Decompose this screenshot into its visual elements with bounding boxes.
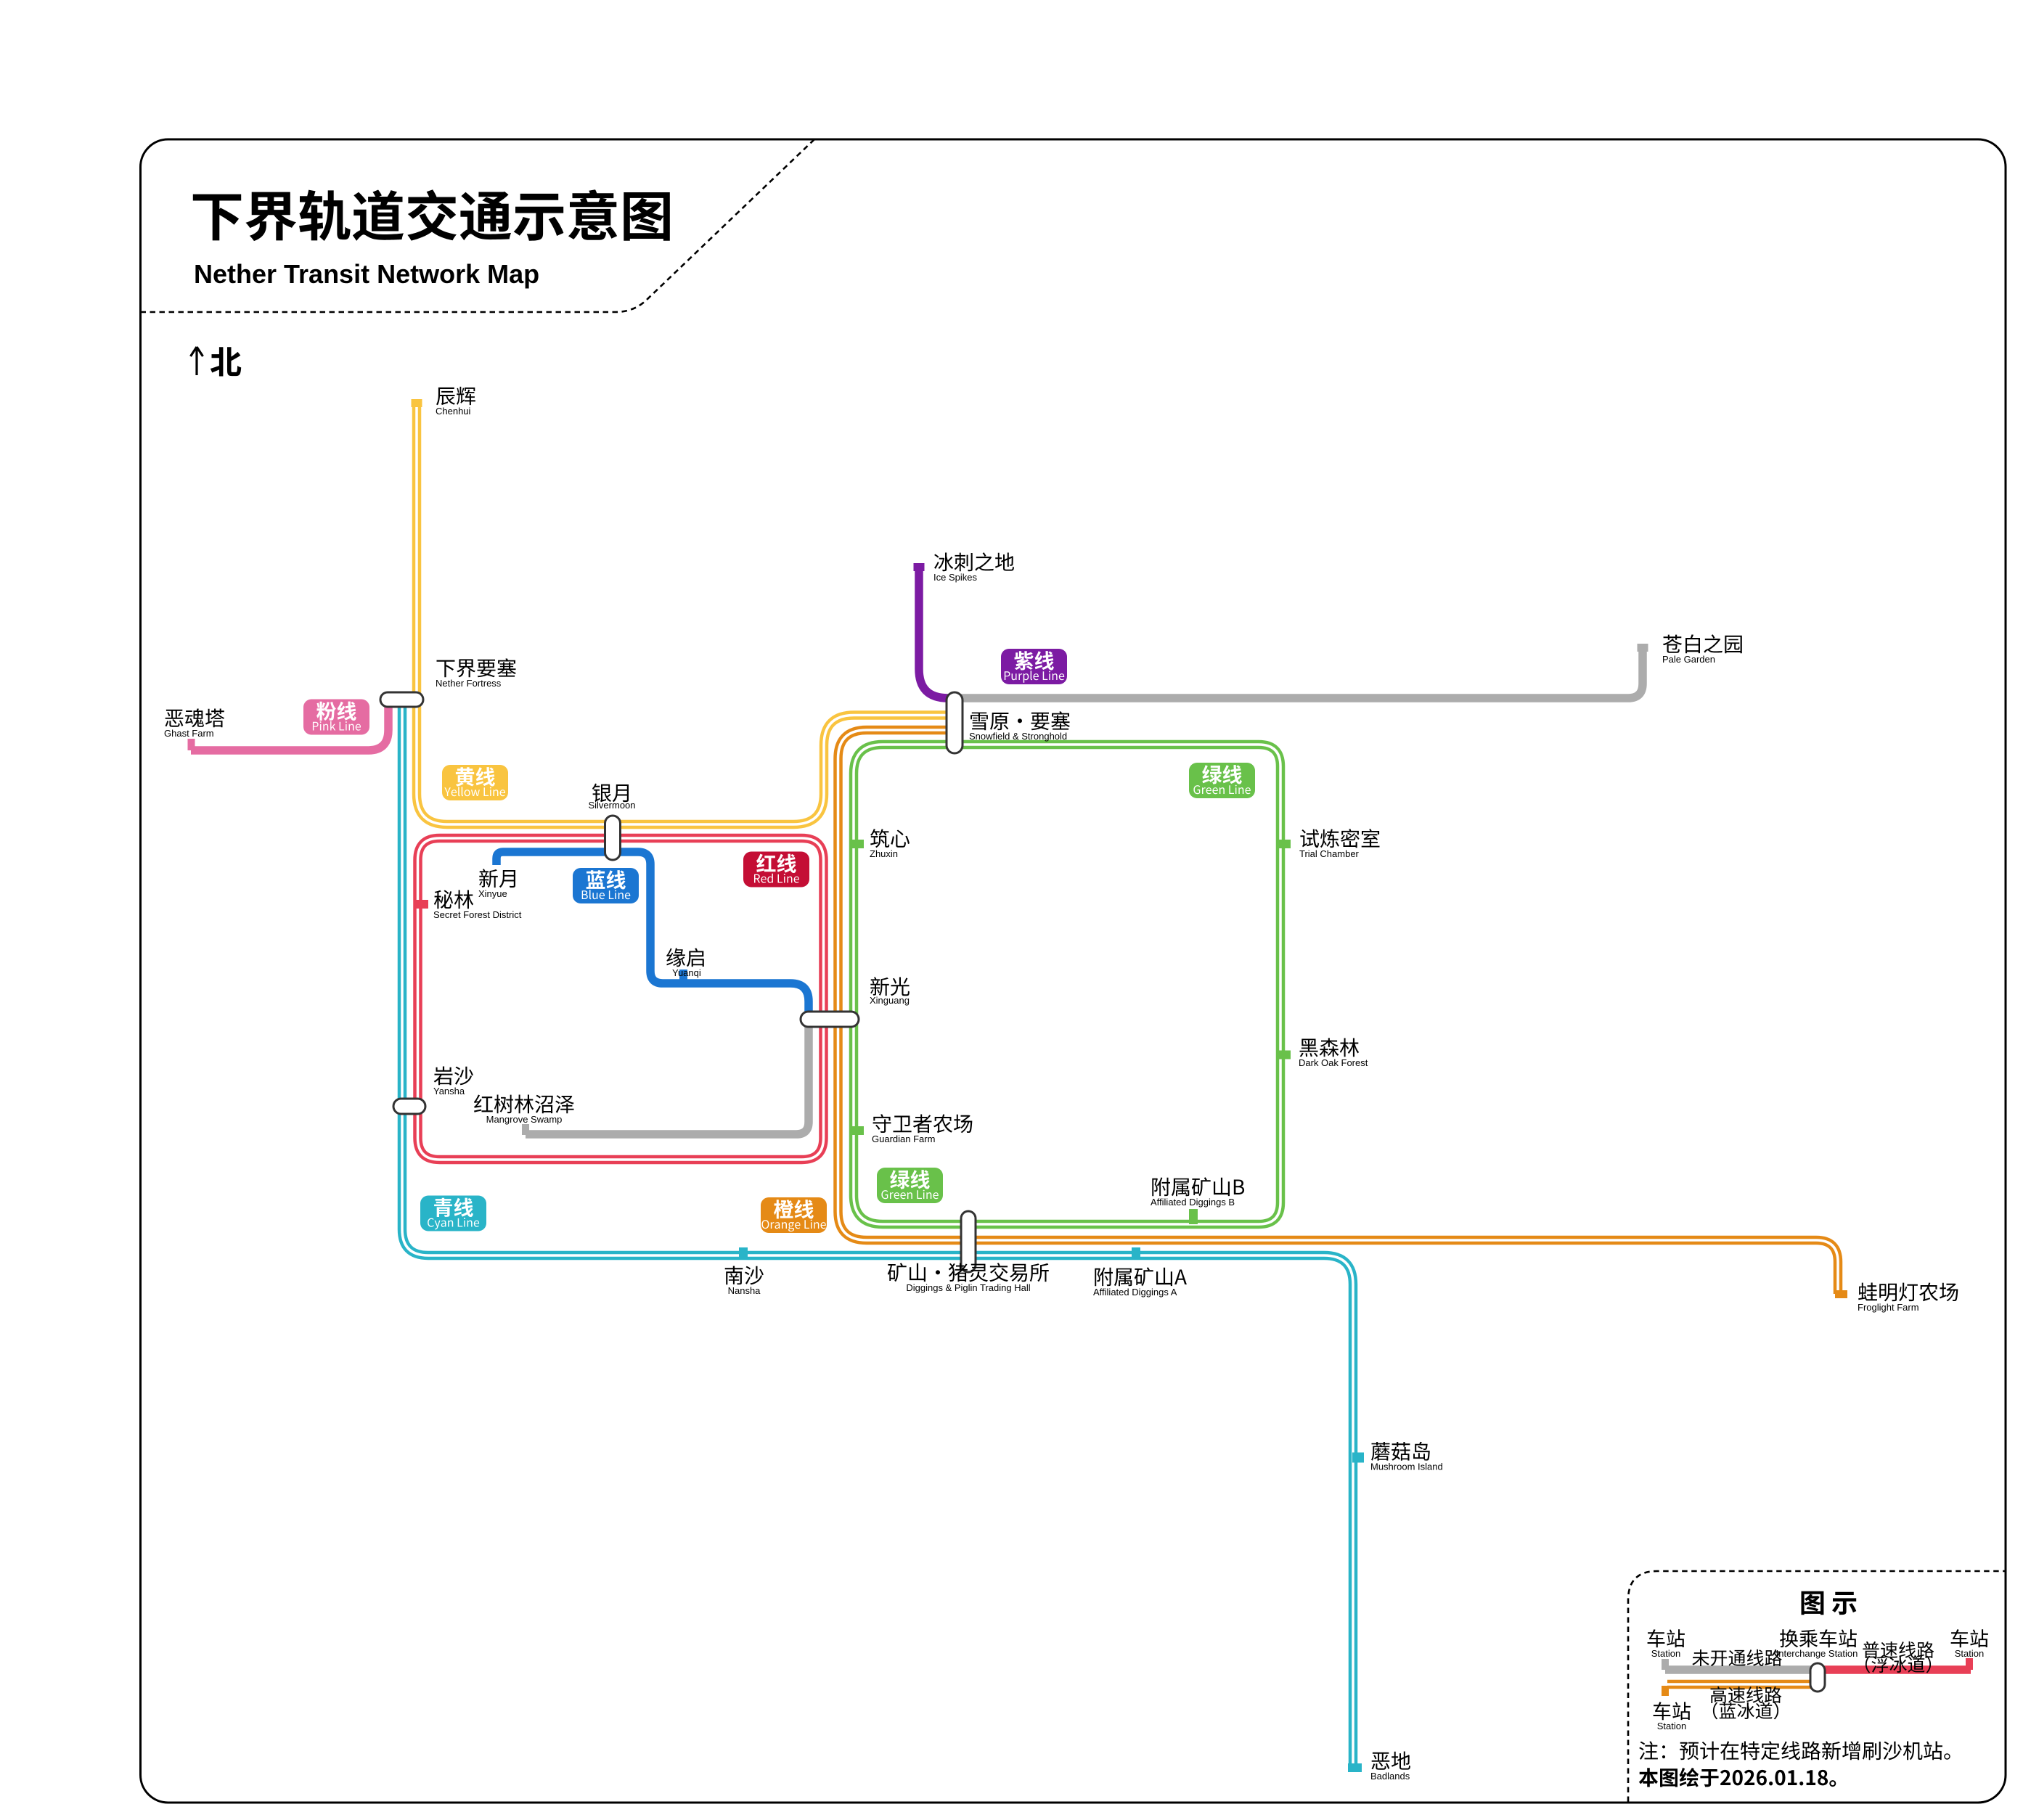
svg-text:Diggings & Piglin Trading Hall: Diggings & Piglin Trading Hall	[906, 1282, 1030, 1293]
svg-text:Pale Garden: Pale Garden	[1662, 654, 1715, 665]
svg-text:Xinguang: Xinguang	[870, 995, 910, 1006]
svg-text:Nether Transit Network Map: Nether Transit Network Map	[194, 259, 539, 289]
svg-text:Nether Fortress: Nether Fortress	[436, 678, 502, 689]
svg-text:Secret Forest District: Secret Forest District	[433, 909, 522, 920]
svg-text:Froglight Farm: Froglight Farm	[1858, 1302, 1919, 1313]
svg-text:Yuanqi: Yuanqi	[672, 967, 701, 978]
svg-text:Station: Station	[1651, 1648, 1680, 1659]
svg-text:Chenhui: Chenhui	[436, 406, 471, 417]
svg-text:Guardian Farm: Guardian Farm	[872, 1134, 935, 1144]
svg-text:Interchange Station: Interchange Station	[1776, 1648, 1858, 1659]
svg-text:Trial Chamber: Trial Chamber	[1299, 848, 1360, 859]
svg-text:Station: Station	[1955, 1648, 1984, 1659]
svg-text:Nansha: Nansha	[728, 1285, 761, 1296]
svg-text:Xinyue: Xinyue	[478, 888, 507, 899]
svg-text:Dark Oak Forest: Dark Oak Forest	[1299, 1057, 1368, 1068]
svg-text:Yansha: Yansha	[433, 1086, 465, 1096]
svg-text:Affiliated Diggings B: Affiliated Diggings B	[1151, 1197, 1235, 1208]
svg-text:Badlands: Badlands	[1370, 1771, 1410, 1782]
svg-text:Mangrove Swamp: Mangrove Swamp	[486, 1114, 563, 1125]
svg-text:Silvermoon: Silvermoon	[588, 800, 635, 811]
svg-text:Affiliated Diggings A: Affiliated Diggings A	[1093, 1287, 1177, 1298]
svg-text:Mushroom Island: Mushroom Island	[1370, 1462, 1443, 1472]
svg-text:Zhuxin: Zhuxin	[870, 848, 898, 859]
svg-text:Snowfield & Stronghold: Snowfield & Stronghold	[969, 731, 1067, 742]
svg-text:Ice Spikes: Ice Spikes	[933, 572, 977, 583]
svg-text:Station: Station	[1657, 1721, 1686, 1731]
svg-text:Ghast Farm: Ghast Farm	[164, 728, 214, 739]
